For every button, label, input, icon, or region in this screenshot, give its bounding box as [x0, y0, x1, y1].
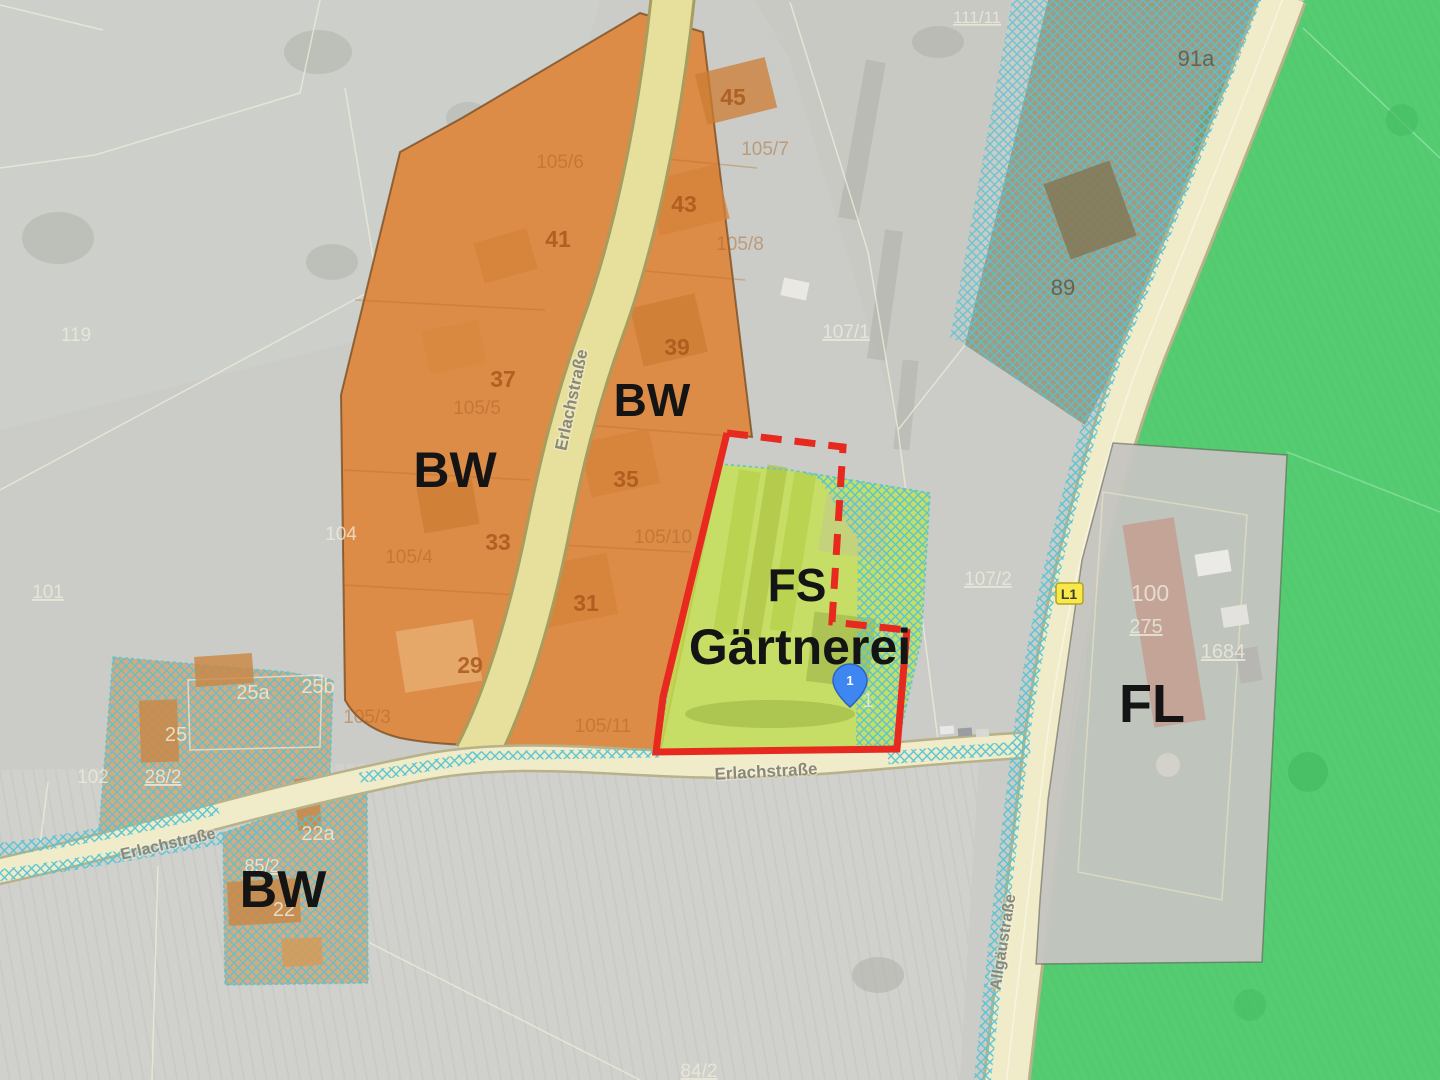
parcel-label: 104: [325, 524, 357, 545]
parcel-label: 45: [720, 84, 746, 110]
parcel-label: 102: [77, 767, 109, 788]
ghost-house-number: 1: [862, 690, 873, 712]
parcel-label: 105/8: [716, 234, 764, 255]
zone-label-gaertnerei: Gärtnerei: [689, 619, 911, 675]
parcel-label: 43: [671, 191, 697, 217]
parcel-label: 105/11: [575, 716, 632, 737]
parcel-label: 39: [664, 334, 690, 360]
parcel-label: 91a: [1178, 46, 1215, 71]
parcel-label: 100: [1131, 580, 1169, 606]
parcel-label: 22a: [301, 823, 335, 845]
parcel-label: 84/2: [681, 1061, 718, 1080]
parcel-label: 105/10: [634, 527, 692, 548]
parcel-label: 105/7: [741, 139, 789, 160]
parcel-label: 29: [457, 652, 483, 678]
road-shield-l1: L1: [1056, 583, 1083, 604]
parcel-label: 105/4: [385, 547, 433, 568]
parcel-label: 275: [1129, 616, 1162, 638]
zone-label-fs: FS: [768, 559, 827, 611]
zone-label-bw-bottom: BW: [240, 861, 328, 919]
parcel-label: 41: [545, 226, 571, 252]
parcel-label: 1684: [1201, 641, 1246, 663]
zone-label-fl: FL: [1119, 674, 1185, 734]
parcel-label: 28/2: [145, 767, 182, 788]
road-shield-label: L1: [1061, 586, 1078, 602]
parcel-label: 25: [165, 724, 187, 746]
parcel-label: 25b: [301, 676, 334, 698]
zone-label-bw-top: BW: [614, 374, 691, 426]
parcel-label: 111/11: [953, 8, 1001, 27]
parcel-label: 37: [490, 366, 516, 392]
parcel-label: 31: [573, 590, 599, 616]
parcel-label: 119: [61, 325, 91, 346]
parcel-label: 33: [485, 529, 511, 555]
parcel-label: 101: [32, 582, 64, 603]
zone-label-bw-left: BW: [413, 442, 497, 498]
parcel-label: 105/5: [453, 398, 501, 419]
pin-number-label: 1: [846, 673, 853, 688]
parcel-label: 105/3: [343, 707, 391, 728]
zoning-map-canvas[interactable]: 45 43 41 39 37 35 33 31 29 105/6 105/7 1…: [0, 0, 1440, 1080]
parcel-label: 35: [613, 466, 639, 492]
parcel-label: 89: [1051, 275, 1075, 300]
parcel-label: 107/2: [964, 569, 1012, 590]
parcel-label: 25a: [236, 682, 270, 704]
parcel-label: 107/1: [822, 322, 870, 343]
parcel-label: 105/6: [536, 152, 584, 173]
